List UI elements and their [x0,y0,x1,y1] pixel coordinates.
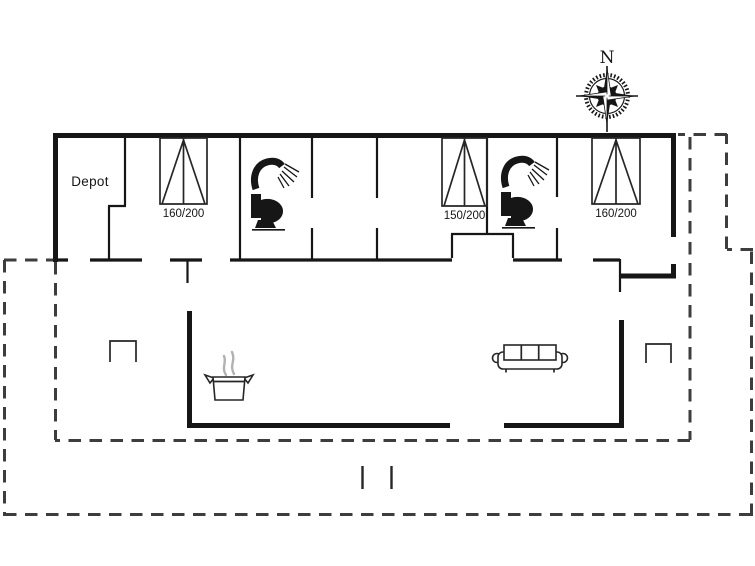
exterior-walls [53,133,676,428]
toilet-icon [501,192,535,229]
bed-outline [442,138,487,206]
pot-body [213,377,245,400]
toilet-bowl [261,199,283,223]
steam-lines [232,352,234,374]
steam-lines [224,356,226,375]
floor-plan: Depot 160/200 150/200 160/200 [0,0,755,566]
shower-arm [254,161,282,189]
shower-icon [504,159,549,187]
bathroom-2-fixtures [501,159,549,228]
shower-icon [254,161,299,189]
depot-room-label: Depot [71,174,109,189]
sofa-icon [493,345,568,373]
toilet-baseline [252,229,285,231]
toilet-bowl [511,197,533,221]
toilet-icon [251,194,285,231]
sofa-back [504,345,556,360]
bedroom-1-bed: 160/200 [160,138,207,220]
bedroom-2-bed: 150/200 [442,138,487,222]
cooking-pot-icon [205,352,253,400]
double-bed-icon [592,138,640,204]
bedroom-3-bed: 160/200 [592,138,640,220]
bed-size-label: 150/200 [444,210,486,222]
toilet-baseline [502,227,535,229]
shower-arm [504,159,532,187]
compass-rose-icon: N [576,48,638,132]
table-icon [110,341,136,362]
double-bed-icon [442,138,487,206]
terrace-entrance-ticks [363,466,392,489]
compass-north-label: N [600,48,615,68]
compass-center-dot [605,94,609,98]
bed-size-label: 160/200 [595,208,637,220]
walls [53,133,676,428]
table-icon [646,344,671,363]
toilet-tank [251,194,261,218]
bathroom-1-fixtures [251,161,299,230]
bed-outline [160,138,207,204]
shower-spray [528,162,549,186]
double-bed-icon [160,138,207,204]
floor-plan-canvas: Depot 160/200 150/200 160/200 [0,0,755,566]
bed-size-label: 160/200 [163,208,205,220]
shower-spray [278,164,299,188]
toilet-tank [501,192,511,216]
bed-outline [592,138,640,204]
